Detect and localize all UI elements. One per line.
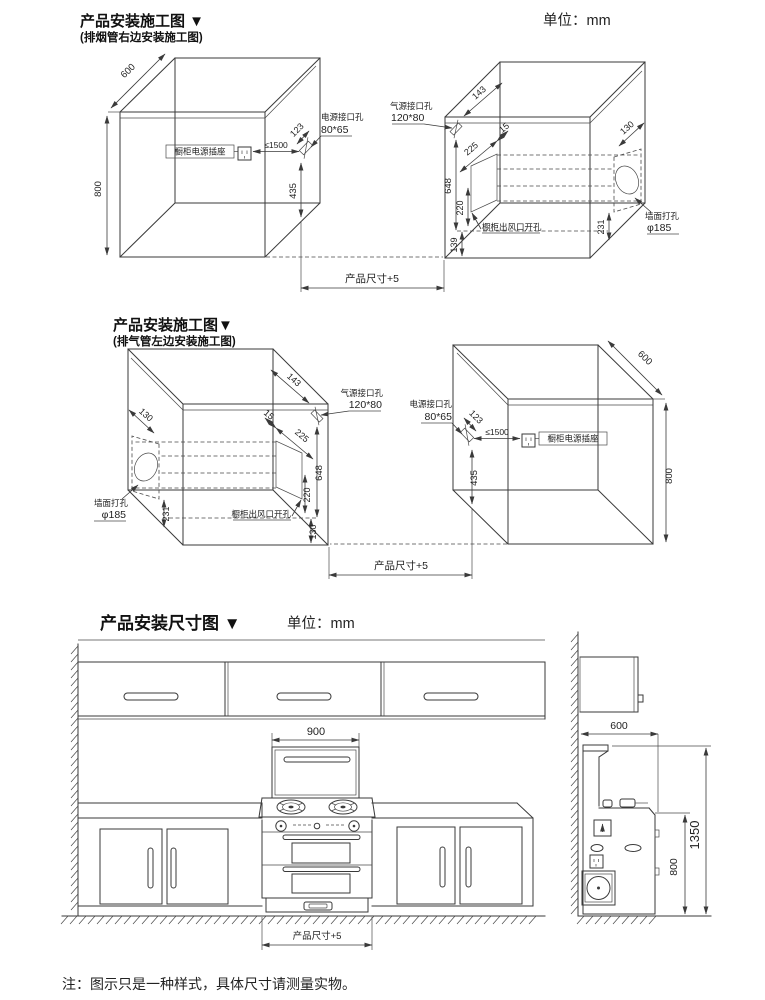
- gas-hole-size: 120*80: [391, 112, 424, 124]
- dim-900: 900: [307, 726, 325, 738]
- power-hole-size: 80*65: [425, 411, 453, 423]
- power-hole-size: 80*65: [321, 124, 349, 136]
- dim-depth: 600: [635, 349, 654, 368]
- dim-220: 220: [455, 200, 465, 215]
- power-hole-name: 电源接口孔: [409, 399, 452, 409]
- socket-side-icon: [590, 855, 603, 868]
- dim-231: 231: [161, 506, 171, 521]
- hood-vent-slot: [284, 757, 350, 762]
- section2-subtitle: (排气管左边安装施工图): [113, 334, 236, 348]
- power-hole-name: 电源接口孔: [321, 112, 364, 122]
- footer-note: 注：图示只是一种样式，具体尺寸请测量实物。: [62, 976, 356, 992]
- floor-hatch: [577, 916, 656, 924]
- wall-hole-name: 墙面打孔: [645, 211, 680, 221]
- socket-label: 橱柜电源插座: [547, 434, 599, 444]
- drawer2-handle: [283, 867, 360, 872]
- dim-143: 143: [285, 371, 303, 388]
- burner-side: [620, 799, 635, 807]
- wall-hatch: [71, 646, 78, 910]
- dim-220: 220: [302, 487, 312, 502]
- dim-1350: 1350: [687, 821, 702, 850]
- section1-title: 产品安装施工图 ▼: [80, 12, 204, 30]
- dim-139: 139: [449, 237, 459, 252]
- burner-side: [603, 800, 612, 807]
- dim-648: 648: [314, 465, 325, 481]
- cabinet-handle-icon: [638, 695, 643, 702]
- handle-side: [625, 845, 641, 852]
- integrated-stove: [259, 747, 375, 912]
- handle-side: [591, 845, 603, 852]
- unit-label-top: 单位：mm: [543, 12, 611, 29]
- installation-manual-page: 产品安装施工图 ▼ (排烟管右边安装施工图) 单位：mm 600 800 橱柜电…: [0, 0, 765, 1000]
- kitchen-elevation-drawing: 900 产品尺寸+5: [61, 640, 545, 950]
- floor-hatch: [61, 916, 536, 924]
- wall-hole-dia: φ185: [647, 222, 671, 234]
- dim-depth: 600: [119, 62, 138, 81]
- section1-subtitle: (排烟管右边安装施工图): [80, 30, 203, 44]
- dim-height: 800: [664, 468, 675, 484]
- dim-225: 225: [293, 427, 311, 444]
- section2-title: 产品安装施工图▼: [113, 316, 233, 334]
- hood-screen: [272, 747, 359, 798]
- drawer1-panel: [292, 843, 350, 863]
- dim-435: 435: [288, 183, 299, 199]
- dim-product-width: 产品尺寸+5: [293, 930, 342, 942]
- dim-225: 225: [462, 140, 480, 157]
- dim-130-bottom: 130: [308, 524, 318, 539]
- plinth-vent: [304, 902, 332, 910]
- gas-hole-name: 气源接口孔: [390, 101, 433, 111]
- wall-hole-name: 墙面打孔: [94, 498, 129, 508]
- gas-hole-name: 气源接口孔: [340, 388, 383, 398]
- socket-label: 橱柜电源插座: [174, 147, 226, 157]
- side-view-drawing: 600 1350 800: [571, 632, 711, 924]
- wall-hatch: [571, 634, 578, 914]
- vent-cut-label: 橱柜出风口开孔: [482, 222, 542, 232]
- dim-800: 800: [668, 858, 680, 876]
- gas-hole-size: 120*80: [349, 399, 382, 411]
- dim-130: 130: [137, 406, 155, 423]
- section3-title: 产品安装尺寸图 ▼: [100, 613, 241, 633]
- drawer2-panel: [292, 874, 350, 893]
- unit-label-bottom: 单位：mm: [287, 615, 355, 632]
- wall-hole-dia: φ185: [102, 509, 126, 521]
- dim-socket-dist: ≤1500: [485, 427, 509, 437]
- technical-drawing: 产品安装施工图 ▼ (排烟管右边安装施工图) 单位：mm 600 800 橱柜电…: [0, 0, 765, 1000]
- dim-product-width: 产品尺寸+5: [345, 272, 399, 285]
- dim-648: 648: [443, 178, 454, 194]
- dim-600: 600: [610, 720, 628, 732]
- dim-height: 800: [93, 181, 104, 197]
- dim-435: 435: [469, 470, 480, 486]
- dim-product-width: 产品尺寸+5: [374, 559, 428, 572]
- power-button-icon: [314, 823, 320, 829]
- section2-construction-drawing: 600 800 橱柜电源插座 ≤1500 电源接口孔 80*65 123 435…: [94, 341, 675, 579]
- dim-231: 231: [596, 219, 606, 234]
- drawer1-handle: [283, 835, 360, 840]
- dim-123: 123: [288, 121, 306, 139]
- vent-cut-label: 橱柜出风口开孔: [231, 509, 291, 519]
- dim-143: 143: [470, 84, 488, 101]
- dim-130: 130: [618, 119, 636, 136]
- dim-socket-dist: ≤1500: [264, 140, 288, 150]
- dim-123: 123: [467, 408, 485, 426]
- section1-construction-drawing: 600 800 橱柜电源插座 ≤1500 电源接口孔 80*65 123 435…: [93, 54, 680, 292]
